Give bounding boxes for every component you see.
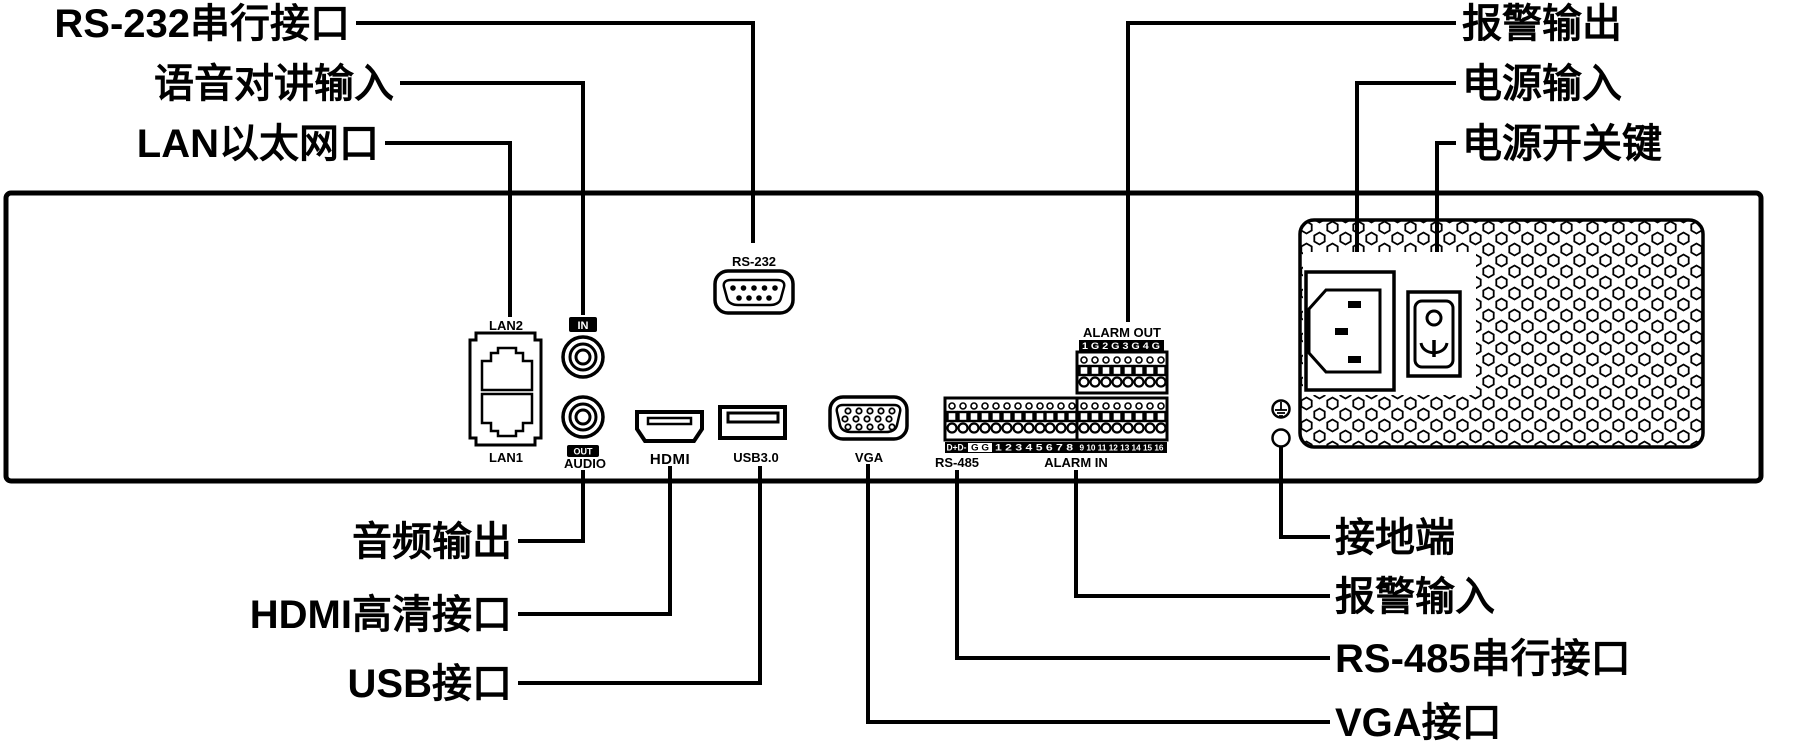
leader-usb xyxy=(518,466,760,683)
rear-panel-diagram-svg: RS-232串行接口 语音对讲输入 LAN以太网口 报警输出 电源输入 电源开关… xyxy=(0,0,1800,746)
audio-port-label: AUDIO xyxy=(564,456,606,471)
hdmi-slot xyxy=(648,418,691,424)
alarm-in-pin-labels-9-16: 9 10 11 12 13 14 15 16 xyxy=(1080,444,1165,453)
alarm-in-block-label: ALARM IN xyxy=(1044,455,1108,470)
leader-vga xyxy=(868,464,1330,722)
usb-slot xyxy=(728,413,778,422)
audio-out-jack xyxy=(563,397,603,437)
usb-port: USB3.0 xyxy=(720,407,785,465)
rs485-alarm-in-terminal-block: D+D- G G 1 2 3 4 5 6 7 8 9 10 11 12 13 1… xyxy=(935,398,1167,470)
alarm-in-pin-labels-1-8: 1 2 3 4 5 6 7 8 xyxy=(995,443,1073,453)
rs232-dshape xyxy=(724,280,784,305)
hdmi-connector xyxy=(637,412,702,441)
callout-alarm-in-label: 报警输入 xyxy=(1335,575,1495,619)
leader-ground xyxy=(1281,447,1330,537)
audio-in-jack xyxy=(563,337,603,377)
callout-ground-label: 接地端 xyxy=(1335,516,1455,560)
ground-screw xyxy=(1273,430,1290,447)
vga-port-label: VGA xyxy=(855,450,884,465)
lan-port: LAN2 LAN1 xyxy=(470,318,541,465)
leader-audio-in xyxy=(400,83,583,315)
vga-port: VGA xyxy=(830,397,907,465)
vga-pins xyxy=(842,408,894,429)
callout-alarm-out-label: 报警输出 xyxy=(1462,2,1622,46)
usb-port-label: USB3.0 xyxy=(733,450,779,465)
callout-rs232-label: RS-232串行接口 xyxy=(54,2,350,46)
fan-grille xyxy=(1300,220,1703,447)
alarm-out-block-label: ALARM OUT xyxy=(1083,325,1161,340)
leader-rs485 xyxy=(957,470,1330,658)
alarm-out-pin-labels: 1 G 2 G 3 G 4 G xyxy=(1082,341,1160,351)
callout-vga-label: VGA接口 xyxy=(1335,701,1502,745)
rs232-pins xyxy=(730,285,778,301)
callout-audio-out-label: 音频输出 xyxy=(352,520,512,564)
ground-terminal xyxy=(1273,401,1290,447)
rs485-pin-labels: D+D- xyxy=(947,443,967,453)
ground-glyph xyxy=(1275,402,1287,416)
callout-usb-label: USB接口 xyxy=(348,662,512,706)
hdmi-port-label: HDMI xyxy=(650,451,690,468)
audio-jacks: IN OUT AUDIO xyxy=(563,317,606,471)
rs232-shell xyxy=(715,271,793,313)
rs232-port: RS-232 xyxy=(715,254,793,313)
rear-panel-diagram: RS-232串行接口 语音对讲输入 LAN以太网口 报警输出 电源输入 电源开关… xyxy=(0,0,1800,746)
callout-hdmi-label: HDMI高清接口 xyxy=(250,593,512,637)
rs232-port-label: RS-232 xyxy=(732,254,776,269)
rj45-jack-lan1 xyxy=(482,394,532,436)
callout-power-switch-label: 电源开关键 xyxy=(1462,122,1662,166)
rs485-block-label: RS-485 xyxy=(935,455,979,470)
lan2-port-label: LAN2 xyxy=(489,318,523,333)
rs485-gnd-pin-labels: G G xyxy=(971,443,989,453)
leader-rs232 xyxy=(356,23,753,243)
rs485-alarm-in-terminals xyxy=(948,403,1166,433)
hdmi-port: HDMI xyxy=(637,412,702,468)
callout-lan-label: LAN以太网口 xyxy=(137,122,379,166)
callout-power-in-label: 电源输入 xyxy=(1462,62,1622,106)
leader-lan xyxy=(385,143,510,317)
rj45-jack-lan2 xyxy=(482,348,532,390)
lan1-port-label: LAN1 xyxy=(489,450,523,465)
callout-rs485-label: RS-485串行接口 xyxy=(1335,637,1631,681)
callout-audio-in-label: 语音对讲输入 xyxy=(154,62,394,106)
audio-out-badge-label: OUT xyxy=(574,447,594,457)
alarm-out-terminals xyxy=(1080,357,1166,387)
alarm-out-terminal-block: ALARM OUT 1 G 2 G 3 G 4 G xyxy=(1077,325,1167,393)
audio-in-badge-label: IN xyxy=(578,320,589,332)
leader-alarm-in xyxy=(1076,470,1330,596)
